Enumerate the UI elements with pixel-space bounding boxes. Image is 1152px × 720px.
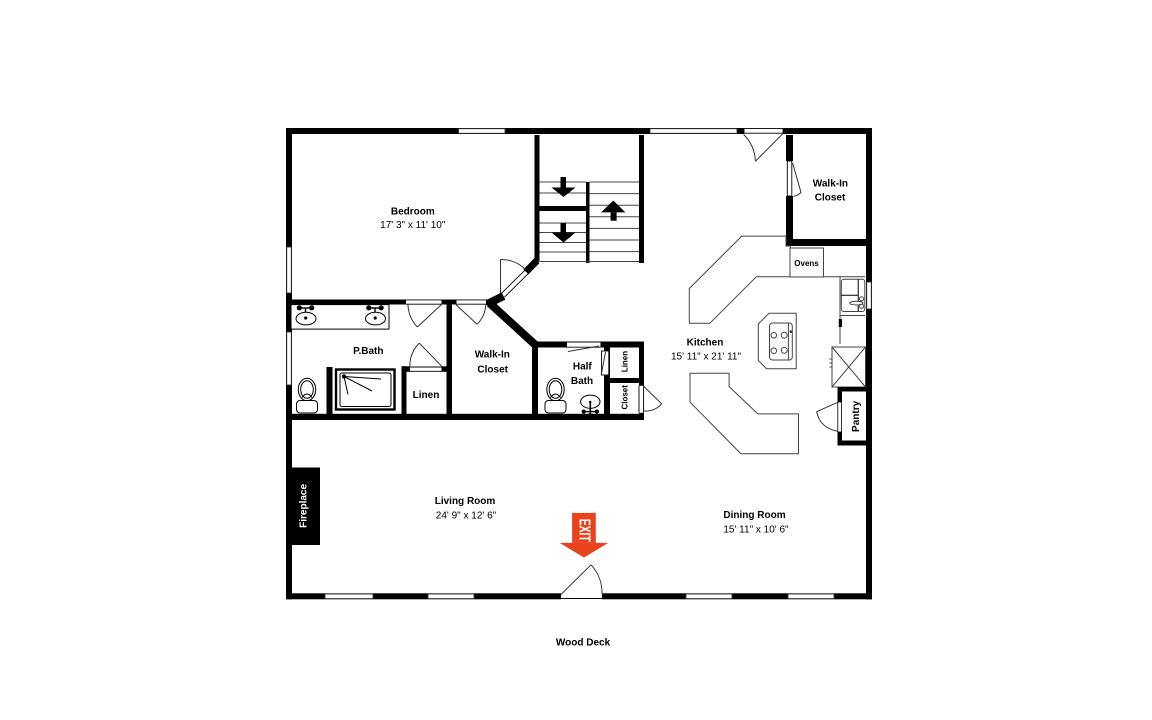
svg-text:Walk-In: Walk-In xyxy=(813,179,848,190)
svg-text:15' 11" x 10' 6": 15' 11" x 10' 6" xyxy=(723,525,789,536)
svg-text:17' 3" x 11' 10": 17' 3" x 11' 10" xyxy=(380,220,446,231)
svg-text:24' 9" x 12' 6": 24' 9" x 12' 6" xyxy=(436,511,497,522)
svg-text:Closet: Closet xyxy=(621,385,630,410)
svg-text:Closet: Closet xyxy=(477,364,508,375)
svg-text:Pantry: Pantry xyxy=(851,400,862,432)
svg-text:Linen: Linen xyxy=(413,390,440,401)
svg-text:Dining Room: Dining Room xyxy=(723,510,785,521)
svg-text:P.Bath: P.Bath xyxy=(353,346,383,357)
svg-text:Walk-In: Walk-In xyxy=(475,350,510,361)
svg-text:Wood Deck: Wood Deck xyxy=(556,637,611,648)
svg-text:Closet: Closet xyxy=(815,193,846,204)
svg-text:Living Room: Living Room xyxy=(435,496,496,507)
svg-text:Bedroom: Bedroom xyxy=(391,207,435,218)
svg-text:Fireplace: Fireplace xyxy=(299,484,310,528)
svg-text:Kitchen: Kitchen xyxy=(687,337,724,348)
svg-text:Half: Half xyxy=(573,361,593,372)
svg-text:EXIT: EXIT xyxy=(575,519,592,542)
svg-text:Linen: Linen xyxy=(620,351,629,372)
svg-text:15' 11" x 21' 11": 15' 11" x 21' 11" xyxy=(671,351,741,362)
svg-text:Bath: Bath xyxy=(571,376,593,387)
svg-text:Ovens: Ovens xyxy=(794,259,819,268)
